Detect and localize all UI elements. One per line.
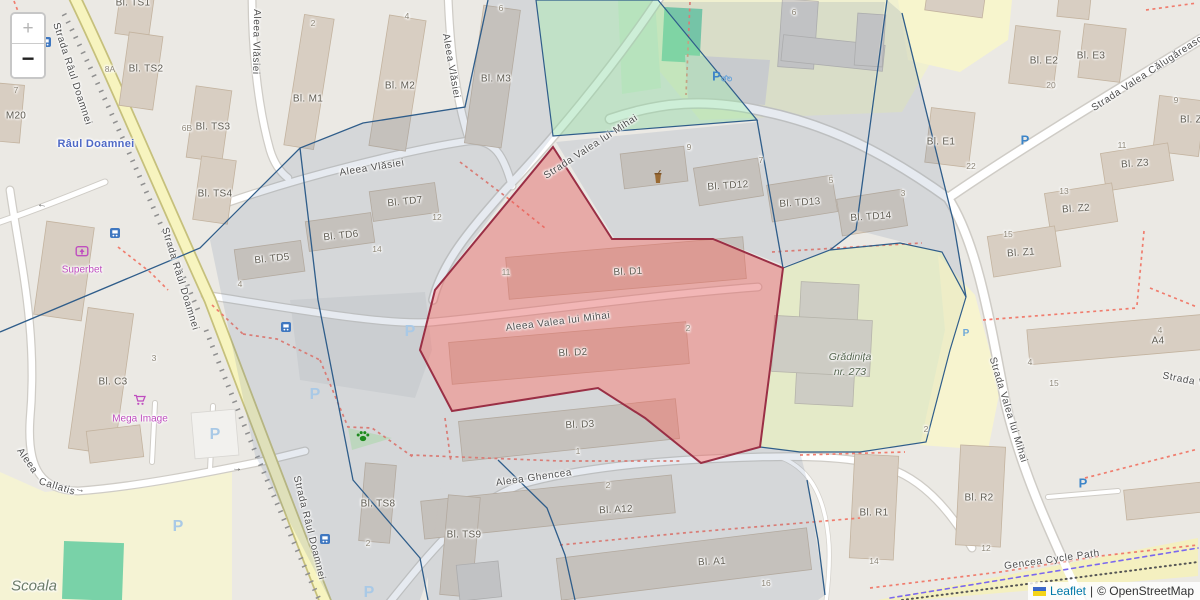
ukraine-flag-icon xyxy=(1033,587,1046,596)
map[interactable]: Strada Râul DoamneiStrada Râul DoamneiSt… xyxy=(0,0,1200,600)
zoom-in-button[interactable]: + xyxy=(12,14,44,44)
leaflet-link[interactable]: Leaflet xyxy=(1050,584,1086,598)
zoom-control: + − xyxy=(10,12,46,79)
zoom-out-button[interactable]: − xyxy=(12,44,44,77)
map-vector-layer xyxy=(0,0,1200,600)
attribution-separator: | xyxy=(1090,584,1093,598)
attribution-bar: Leaflet | © OpenStreetMap xyxy=(1028,582,1200,600)
openstreetmap-link[interactable]: © OpenStreetMap xyxy=(1097,584,1194,598)
